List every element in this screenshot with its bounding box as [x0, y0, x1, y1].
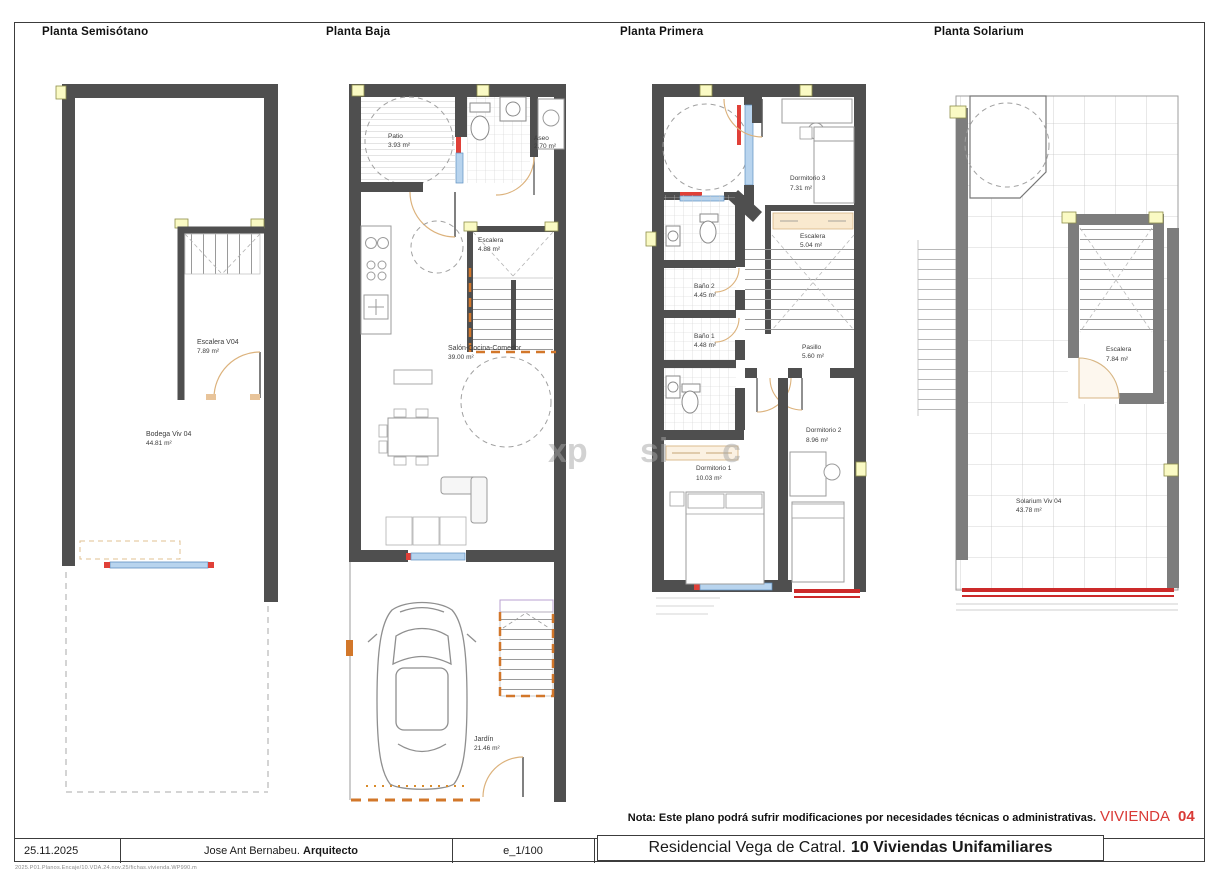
modification-note: Nota: Este plano podrá sufrir modificaci…: [594, 812, 1096, 828]
room-label: Escalera V04: [197, 339, 239, 346]
watermark-fragment: xp: [548, 432, 588, 470]
room-area: 10.03 m²: [696, 475, 722, 482]
plan-semisotano: Escalera V04 7.89 m² Bodega Viv 04 44.81…: [56, 84, 278, 792]
neighbor-stairs: [918, 240, 956, 416]
architect-name: Jose Ant Bernabeu.: [204, 845, 300, 857]
file-reference: 2025.P01.Planos.Encaje/10.VDA.24.nov.25/…: [15, 865, 197, 871]
desk: [790, 452, 826, 496]
room-label: Jardín: [474, 736, 494, 743]
room-label: Patio: [388, 133, 403, 140]
vivienda-word: VIVIENDA: [1100, 808, 1170, 825]
toilet-icon: [471, 116, 489, 140]
red-pergola-line: [962, 588, 1174, 592]
exterior-stairs-icon: [500, 612, 553, 696]
toilet-icon: [682, 391, 698, 413]
date-value: 25.11.2025: [24, 845, 78, 857]
room-area: 5.60 m²: [802, 353, 825, 360]
dining-table: [388, 418, 438, 456]
plan-solarium: Escalera 7.84 m² Solarium Viv 04 43.78 m…: [918, 96, 1179, 610]
room-area: 7.89 m²: [197, 348, 220, 355]
door-arc-icon: [483, 757, 523, 797]
window-icon: [110, 562, 208, 568]
room-label: Escalera: [1106, 346, 1132, 353]
room-label: Dormitorio 2: [806, 427, 842, 434]
room-area: 39.00 m²: [448, 354, 474, 361]
bed-icon: [814, 127, 854, 203]
watermark-fragment: c: [722, 432, 741, 470]
room-label: Baño 2: [694, 283, 715, 290]
red-railing: [794, 589, 860, 593]
project-name: Residencial Vega de Catral.: [648, 839, 845, 857]
desk: [782, 99, 852, 123]
stairs-icon: [185, 234, 260, 274]
vivienda-number: 04: [1178, 808, 1195, 825]
car-icon: [368, 603, 476, 790]
room-area: 44.81 m²: [146, 440, 172, 447]
watermark-fragment: si: [640, 432, 668, 470]
room-area: 5.04 m²: [800, 242, 823, 249]
patio-hatch: [361, 97, 455, 183]
room-label: Aseo: [534, 135, 549, 142]
architect-role: Arquitecto: [303, 845, 358, 857]
room-area: 7.31 m²: [790, 185, 813, 192]
room-label: Dormitorio 3: [790, 175, 826, 182]
room-area: 21.46 m²: [474, 745, 500, 752]
project-title-box: Residencial Vega de Catral. 10 Viviendas…: [597, 835, 1104, 861]
toilet-icon: [700, 221, 716, 243]
vivienda-label: VIVIENDA04: [1100, 808, 1210, 825]
room-label: Bodega Viv 04: [146, 431, 192, 438]
project-subtitle: 10 Viviendas Unifamiliares: [851, 839, 1053, 857]
room-label: Pasillo: [802, 344, 822, 351]
plan-primera: Dormitorio 3 7.31 m² Escalera 5.04 m² Ba…: [646, 84, 866, 614]
room-label: Escalera: [478, 237, 504, 244]
architect-cell: Jose Ant Bernabeu. Arquitecto: [110, 839, 453, 863]
room-area: 43.78 m²: [1016, 507, 1042, 514]
column-pad: [56, 86, 66, 99]
room-label: Salón-Cocina-Comedor: [448, 345, 522, 352]
patio-void-circle: [663, 104, 749, 190]
scale-cell: e_1/100: [452, 839, 595, 863]
room-area: 3.93 m²: [388, 142, 411, 149]
window-icon: [411, 553, 465, 560]
plan-baja: Patio 3.93 m² Aseo 2.70 m² Escalera 4.88…: [346, 84, 566, 802]
room-label: Solarium Viv 04: [1016, 498, 1062, 505]
room-label: Baño 1: [694, 333, 715, 340]
room-area: 2.70 m²: [534, 143, 557, 150]
room-area: 8.96 m²: [806, 437, 829, 444]
date-cell: 25.11.2025: [14, 839, 121, 863]
architectural-sheet: Planta Semisótano Planta Baja Planta Pri…: [0, 0, 1221, 887]
room-area: 7.84 m²: [1106, 356, 1129, 363]
scale-value: e_1/100: [503, 845, 543, 857]
stair-bulkhead: [970, 96, 1046, 198]
room-area: 4.48 m²: [694, 342, 717, 349]
floor-plans-drawing: Escalera V04 7.89 m² Bodega Viv 04 44.81…: [0, 0, 1221, 887]
room-area: 4.88 m²: [478, 246, 501, 253]
projection-dashed-outline: [66, 572, 268, 792]
room-label: Escalera: [800, 233, 826, 240]
door-arc-icon: [214, 352, 260, 398]
room-area: 4.45 m²: [694, 292, 717, 299]
